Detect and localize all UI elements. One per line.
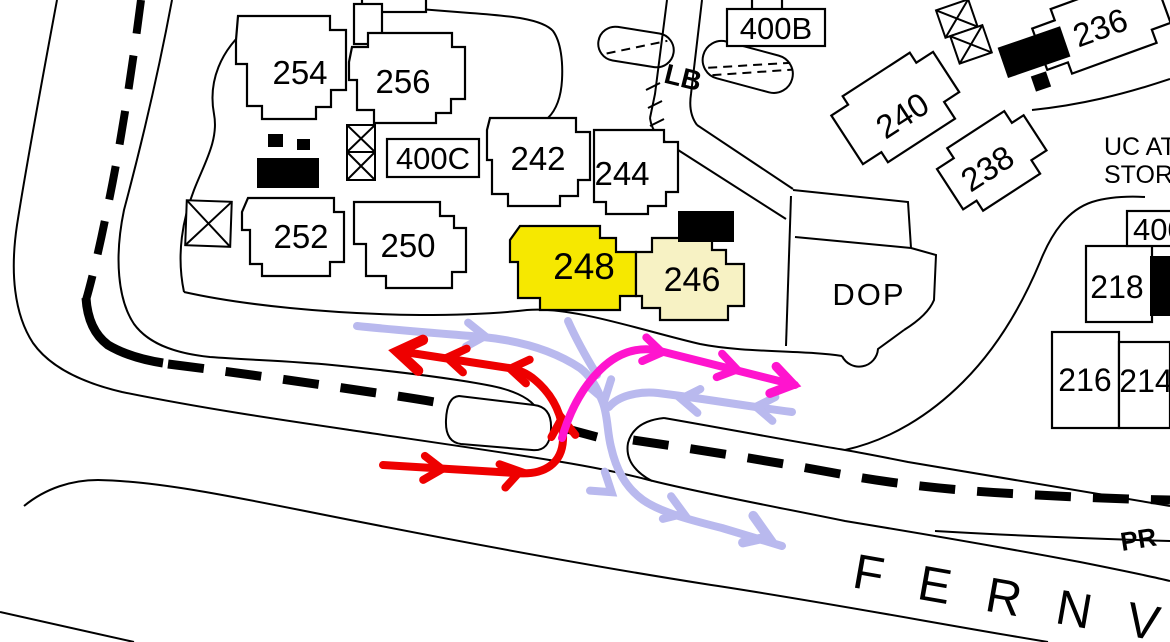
centerline-east — [633, 440, 1170, 500]
corridor-line-left — [650, 0, 667, 118]
solid-roof-icon — [1150, 256, 1170, 316]
label-256: 256 — [375, 63, 430, 100]
solid-roof-icon — [297, 139, 310, 150]
centerline-bend-solid — [86, 298, 163, 363]
route-purple-main-path — [357, 326, 782, 546]
label-252: 252 — [273, 218, 328, 255]
label-242: 242 — [510, 140, 565, 177]
crossed-box-icon — [936, 0, 992, 65]
label-244: 244 — [594, 155, 649, 192]
crossed-box-icon — [347, 125, 375, 180]
campus-site-map: 400C 400B 400 254 256 252 250 242 244 24… — [0, 0, 1170, 642]
label-214: 214 — [1119, 363, 1170, 399]
label-400b: 400B — [740, 11, 812, 46]
road-north-edge-east — [664, 418, 1170, 506]
label-246: 246 — [664, 261, 721, 299]
parking-loop-icon — [596, 24, 676, 69]
road-linework — [0, 0, 1170, 642]
arrowhead-icon — [590, 472, 619, 502]
label-lb: LB — [661, 58, 705, 97]
street-name-pr: PR — [1118, 522, 1159, 557]
label-218: 218 — [1090, 269, 1143, 305]
label-uc-line1: UC AT — [1104, 133, 1170, 161]
label-216: 216 — [1058, 362, 1111, 398]
label-254: 254 — [272, 54, 327, 91]
label-248: 248 — [553, 246, 615, 287]
crossed-box-icon — [185, 200, 232, 247]
label-dop: DOP — [832, 277, 905, 312]
solid-roof-icon — [678, 211, 734, 242]
dop-corner-arc — [842, 330, 904, 367]
uc-parcel-curve — [1032, 79, 1170, 110]
label-250: 250 — [380, 227, 435, 264]
parcel-west-boundary — [181, 26, 250, 292]
centerline-west-horizontal — [168, 364, 446, 404]
corridor-line-right — [690, 0, 702, 125]
dop-walkway-bottom — [795, 237, 911, 248]
street-labels: FERNV PR — [849, 522, 1170, 642]
dop-east-edge — [904, 248, 936, 330]
corner-arc-southwest — [0, 612, 134, 642]
label-uc-line2: STOR — [1104, 161, 1170, 189]
dop-west-edge — [786, 196, 791, 346]
median-nose-east — [628, 418, 665, 481]
label-400c: 400C — [396, 141, 470, 176]
median-island — [446, 396, 551, 450]
solid-roof-icon — [257, 158, 319, 188]
solid-roof-icon — [1031, 71, 1051, 91]
street-name-fernvale: FERNV — [849, 545, 1170, 642]
label-400-right: 400 — [1133, 212, 1170, 247]
solid-roof-icon — [268, 134, 283, 147]
corridor-diagonal-1 — [697, 125, 793, 189]
centerline-west-vertical — [86, 0, 141, 300]
